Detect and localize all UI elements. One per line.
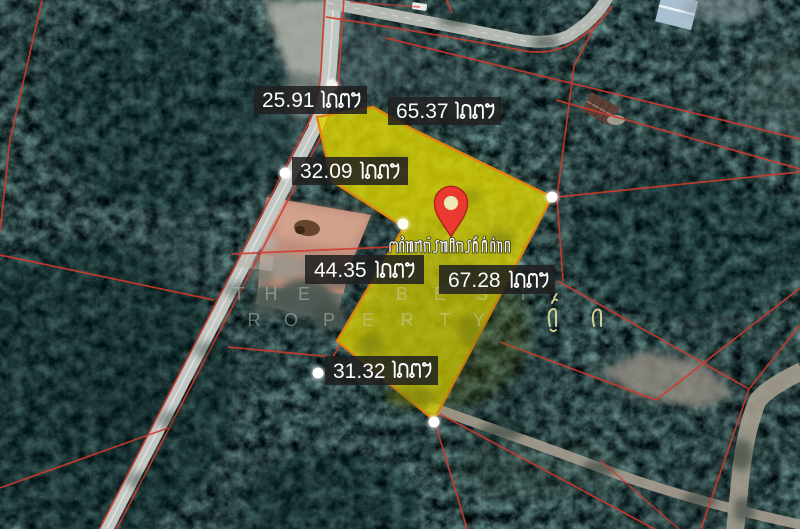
svg-text:E: E bbox=[362, 310, 374, 330]
svg-text:T: T bbox=[234, 284, 245, 304]
svg-text:E: E bbox=[298, 284, 310, 304]
svg-text:67.28: 67.28 bbox=[448, 269, 501, 292]
svg-text:T: T bbox=[440, 310, 451, 330]
svg-text:O: O bbox=[284, 310, 298, 330]
svg-text:25.91: 25.91 bbox=[262, 89, 315, 112]
svg-text:P: P bbox=[211, 310, 223, 330]
svg-text:44.35: 44.35 bbox=[314, 259, 367, 282]
svg-text:32.09: 32.09 bbox=[300, 160, 353, 183]
svg-text:31.32: 31.32 bbox=[333, 360, 386, 383]
svg-text:B: B bbox=[396, 284, 408, 304]
svg-text:R: R bbox=[248, 310, 261, 330]
svg-text:65.37: 65.37 bbox=[396, 100, 449, 123]
svg-text:P: P bbox=[323, 310, 335, 330]
svg-text:R: R bbox=[401, 310, 414, 330]
svg-text:H: H bbox=[265, 284, 278, 304]
svg-text:Y: Y bbox=[473, 310, 485, 330]
